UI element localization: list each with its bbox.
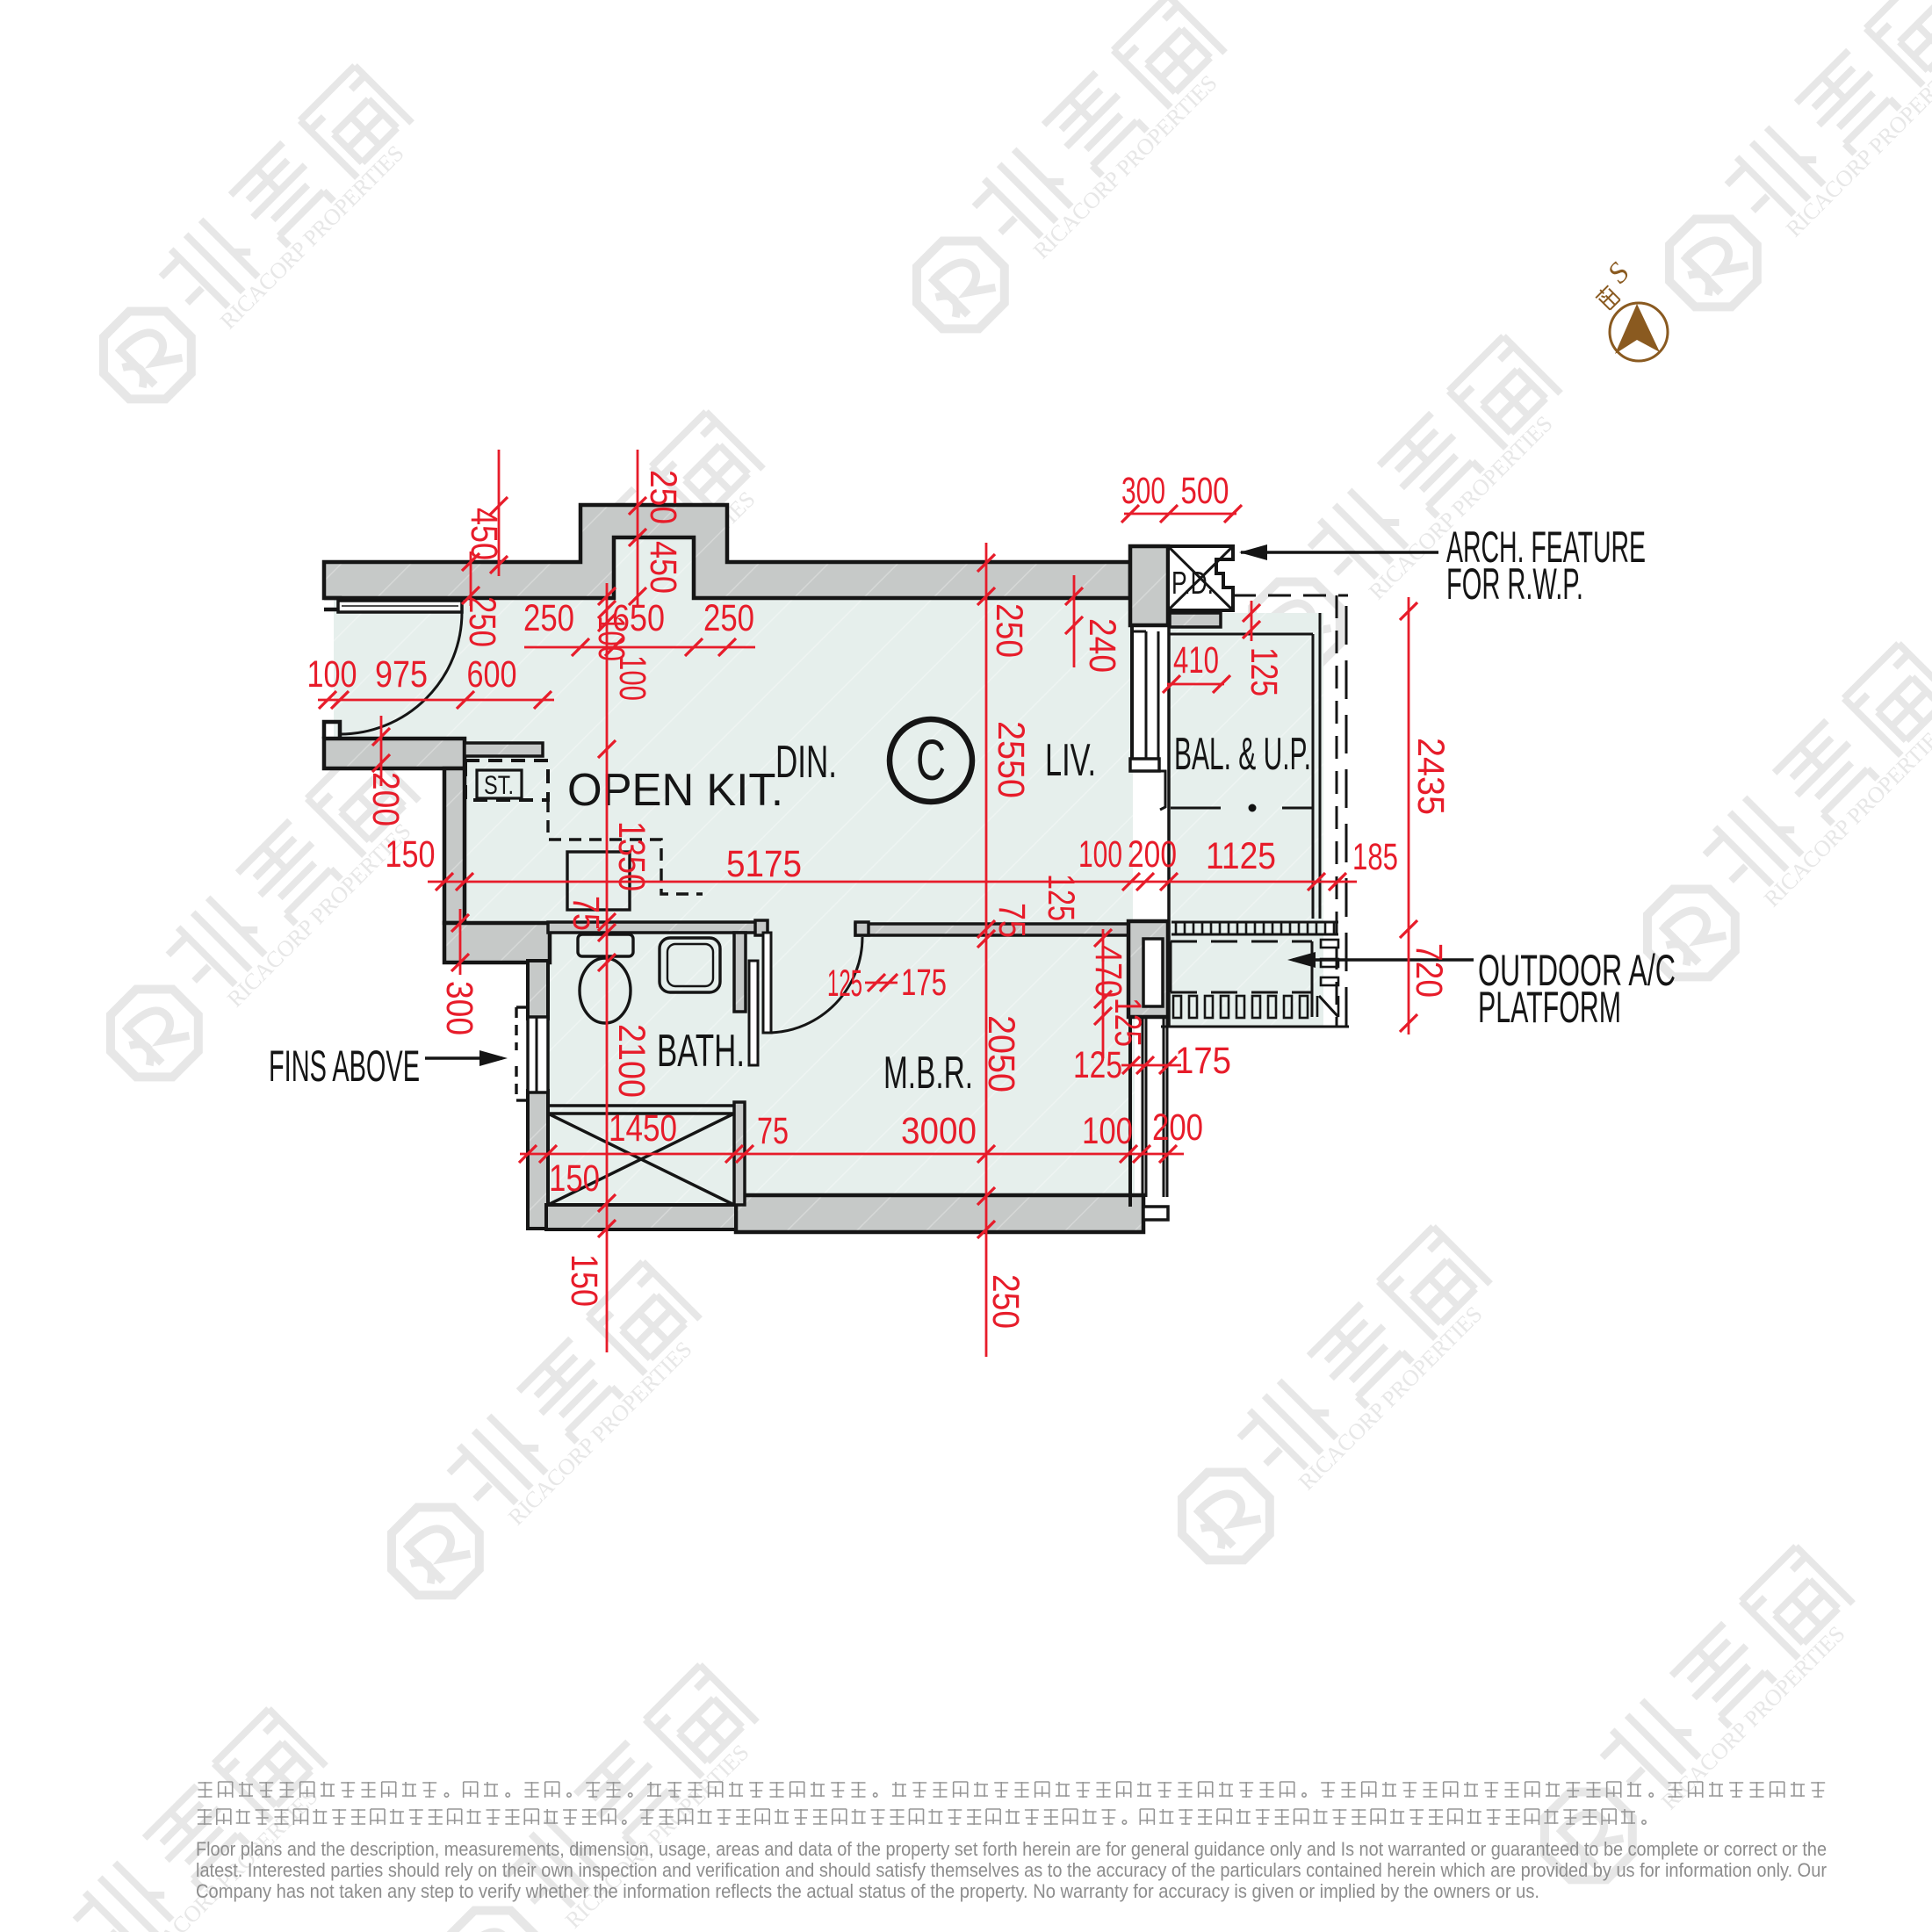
svg-text:Floor plans and the descriptio: Floor plans and the description, measure… xyxy=(196,1838,1827,1860)
svg-text:150: 150 xyxy=(549,1157,600,1200)
svg-text:200: 200 xyxy=(364,772,407,826)
svg-text:125: 125 xyxy=(1040,874,1082,921)
svg-text:1450: 1450 xyxy=(609,1107,677,1150)
svg-text:DIN.: DIN. xyxy=(775,737,837,788)
svg-text:125: 125 xyxy=(827,962,862,1005)
svg-text:185: 185 xyxy=(1352,836,1398,878)
svg-text:300: 300 xyxy=(1121,470,1165,512)
svg-text:250: 250 xyxy=(461,596,503,647)
svg-text:BATH.: BATH. xyxy=(657,1026,745,1077)
svg-text:125: 125 xyxy=(1243,647,1285,696)
svg-text:125: 125 xyxy=(1107,998,1149,1047)
svg-text:ST.: ST. xyxy=(484,771,514,800)
svg-text:75: 75 xyxy=(991,903,1033,938)
svg-text:P.D.: P.D. xyxy=(1171,565,1214,601)
svg-text:2050: 2050 xyxy=(980,1015,1022,1092)
svg-text:125: 125 xyxy=(1073,1044,1122,1086)
svg-text:500: 500 xyxy=(1181,470,1229,512)
svg-text:150: 150 xyxy=(563,1254,605,1307)
svg-text:M.B.R.: M.B.R. xyxy=(883,1048,973,1099)
svg-text:450: 450 xyxy=(463,508,505,560)
svg-text:1350: 1350 xyxy=(610,821,652,891)
svg-text:410: 410 xyxy=(1173,639,1219,681)
svg-text:100: 100 xyxy=(1078,833,1122,876)
svg-text:300: 300 xyxy=(438,981,480,1035)
svg-text:175: 175 xyxy=(1175,1040,1231,1082)
svg-text:250: 250 xyxy=(642,470,684,524)
svg-text:BAL. & U.P.: BAL. & U.P. xyxy=(1174,729,1311,780)
svg-text:2435: 2435 xyxy=(1409,738,1452,815)
svg-text:240: 240 xyxy=(1081,618,1123,673)
svg-text:FOR R.W.P.: FOR R.W.P. xyxy=(1446,559,1583,609)
svg-text:720: 720 xyxy=(1408,943,1450,998)
svg-text:150: 150 xyxy=(386,833,436,876)
svg-text:100: 100 xyxy=(1082,1110,1133,1152)
svg-text:1125: 1125 xyxy=(1206,835,1276,877)
svg-text:75: 75 xyxy=(565,896,607,931)
svg-text:2550: 2550 xyxy=(990,721,1032,798)
svg-text:250: 250 xyxy=(988,603,1030,658)
svg-text:75: 75 xyxy=(757,1110,789,1152)
svg-text:250: 250 xyxy=(984,1274,1027,1329)
svg-text:C: C xyxy=(916,727,946,792)
svg-text:PLATFORM: PLATFORM xyxy=(1478,983,1621,1032)
svg-text:975: 975 xyxy=(375,653,428,696)
svg-text:250: 250 xyxy=(703,597,754,639)
svg-text:175: 175 xyxy=(901,962,947,1004)
svg-text:100: 100 xyxy=(611,655,653,701)
svg-text:2100: 2100 xyxy=(610,1024,652,1098)
svg-text:5175: 5175 xyxy=(726,843,802,885)
svg-text:100: 100 xyxy=(307,653,357,696)
svg-text:250: 250 xyxy=(523,597,574,639)
svg-text:LIV.: LIV. xyxy=(1045,735,1096,786)
svg-text:FINS ABOVE: FINS ABOVE xyxy=(269,1042,420,1091)
svg-text:470: 470 xyxy=(1087,945,1129,998)
svg-text:OPEN KIT.: OPEN KIT. xyxy=(567,765,783,816)
svg-text:latest. Interested parties sho: latest. Interested parties should rely o… xyxy=(196,1859,1827,1881)
svg-text:600: 600 xyxy=(467,653,517,696)
svg-text:Company has not taken any step: Company has not taken any step to verify… xyxy=(196,1880,1539,1902)
svg-text:200: 200 xyxy=(1152,1107,1203,1149)
svg-text:450: 450 xyxy=(642,541,684,594)
svg-text:3000: 3000 xyxy=(901,1110,977,1152)
svg-text:200: 200 xyxy=(1128,833,1177,876)
